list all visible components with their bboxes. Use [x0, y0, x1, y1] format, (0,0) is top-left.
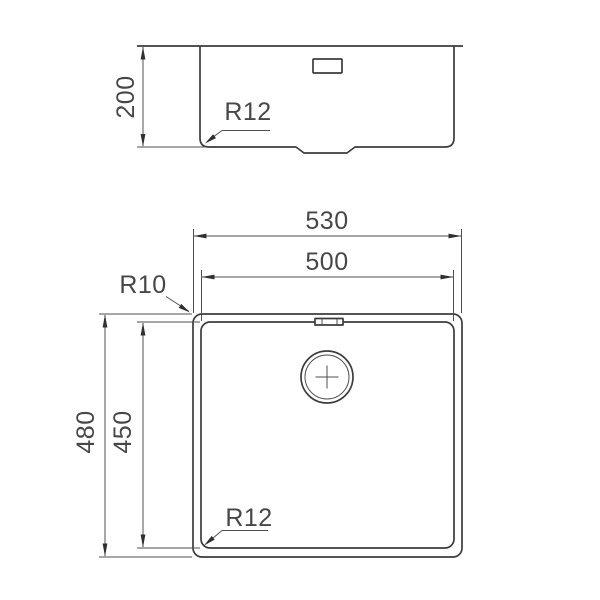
arrowhead-up-icon	[141, 323, 146, 336]
overflow-outline	[313, 59, 342, 73]
overflow-slot	[315, 319, 343, 326]
dim-label-530: 530	[305, 207, 348, 235]
arrowhead-up-icon	[141, 47, 146, 60]
side-view: 200 R12	[112, 46, 463, 153]
arrowhead-down-icon	[141, 535, 146, 548]
arrowhead-right-icon	[441, 275, 454, 280]
dim-label-450: 450	[109, 410, 137, 453]
arrowhead-left-icon	[202, 275, 215, 280]
arrowhead-down-icon	[141, 134, 146, 147]
dim-label-500: 500	[305, 248, 348, 276]
plan-view: 530 500 R10 480 450	[72, 207, 462, 557]
dim-label-480: 480	[72, 410, 100, 453]
arrowhead-down-icon	[103, 544, 108, 557]
arrowhead-left-icon	[194, 234, 207, 239]
radius-label-r12-side: R12	[224, 98, 271, 126]
dim-label-200: 200	[112, 75, 140, 118]
radius-label-r12-plan: R12	[225, 504, 272, 532]
arrowhead-up-icon	[103, 315, 108, 328]
arrowhead-right-icon	[449, 234, 462, 239]
technical-drawing: 200 R12	[0, 0, 600, 600]
drawing-canvas: 200 R12	[0, 0, 600, 600]
radius-label-r10: R10	[119, 271, 166, 299]
